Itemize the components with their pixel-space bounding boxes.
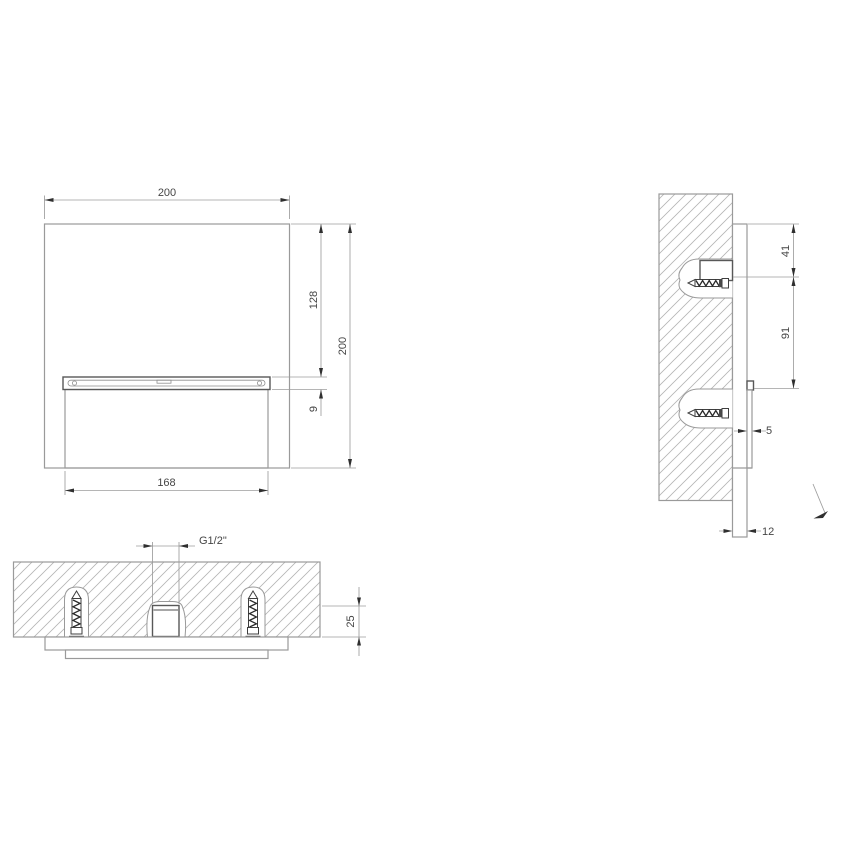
arrowhead [65,489,74,493]
arrowhead [144,544,153,548]
arrowhead [319,368,323,377]
arrowhead [259,489,268,493]
arrowhead [179,544,188,548]
anchor-screw-top [688,279,729,289]
technical-drawing: 200 128 9 200 168 [0,0,850,850]
dim-label-anchor-to-spout: 91 [780,327,792,339]
panel-plan-profile [45,637,288,650]
panel-front-outline [45,224,290,468]
dim-label-top-to-anchor: 41 [780,245,792,257]
arrowhead [747,529,756,533]
arrowhead [792,380,796,389]
leader-line-artifact [813,484,825,513]
arrowhead [792,224,796,233]
dim-label-slot-height: 9 [308,406,320,412]
panel-side-profile [733,224,748,537]
arrowhead [357,637,361,646]
arrowhead [792,268,796,277]
side-section-view: 41 91 5 12 [659,194,828,538]
arrowhead [45,198,54,202]
dim-label-panel-thickness: 12 [762,526,774,538]
dim-label-front-height: 200 [337,337,349,355]
dim-label-slot-width: 168 [157,477,175,489]
arrowhead [724,529,733,533]
anchor-screw-bottom [688,409,729,419]
arrowhead [357,598,361,607]
lower-plate-plan-profile [66,650,269,659]
technical-drawing-page: 200 128 9 200 168 [0,0,850,850]
mounting-bracket-section [700,261,733,281]
dim-label-slot-top: 128 [308,291,320,309]
leader-arrowhead [814,511,829,519]
arrowhead [348,224,352,233]
arrowhead [319,390,323,399]
front-view: 200 128 9 200 168 [45,187,357,495]
spout-nozzle-side [747,381,754,390]
lower-plate-side [747,390,752,468]
dim-lines-front-width [45,196,290,220]
dim-label-front-width: 200 [158,187,176,199]
arrowhead [319,224,323,233]
dim-label-recess-depth: 25 [345,615,357,627]
wall-section-side [659,194,733,501]
arrowhead [281,198,290,202]
plan-section-view: G1/2" 25 [14,535,367,659]
dim-label-thread: G1/2" [199,535,227,547]
dim-lines-recess-depth [322,587,366,656]
lower-plate-front [65,390,268,469]
arrowhead [348,459,352,468]
dim-label-plate-offset: 5 [766,425,772,437]
arrowhead [792,277,796,286]
arrowhead [752,429,761,433]
